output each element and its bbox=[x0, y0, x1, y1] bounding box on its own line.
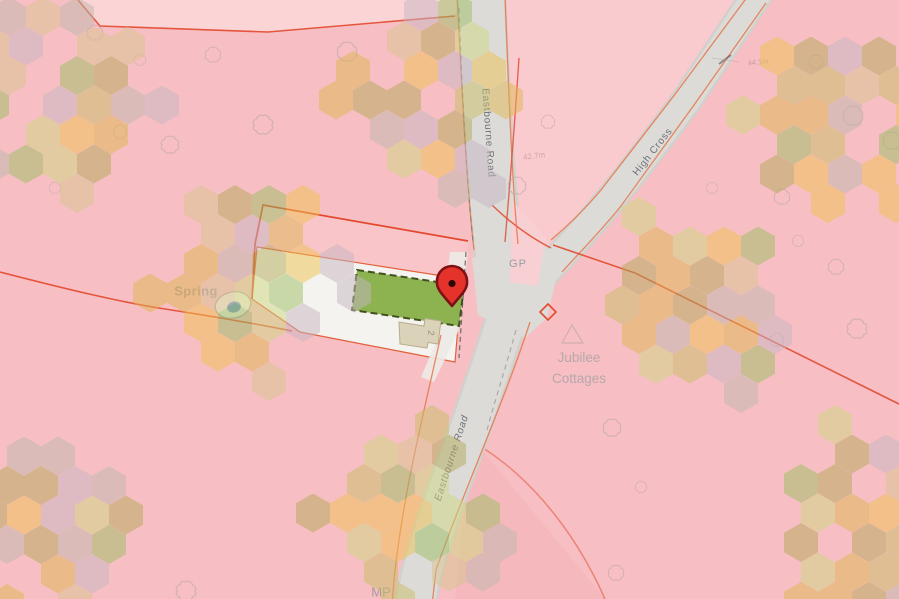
map-base-art bbox=[0, 0, 899, 599]
map-canvas[interactable]: Spring GP Jubilee Cottages MP Eastbourne… bbox=[0, 0, 899, 599]
